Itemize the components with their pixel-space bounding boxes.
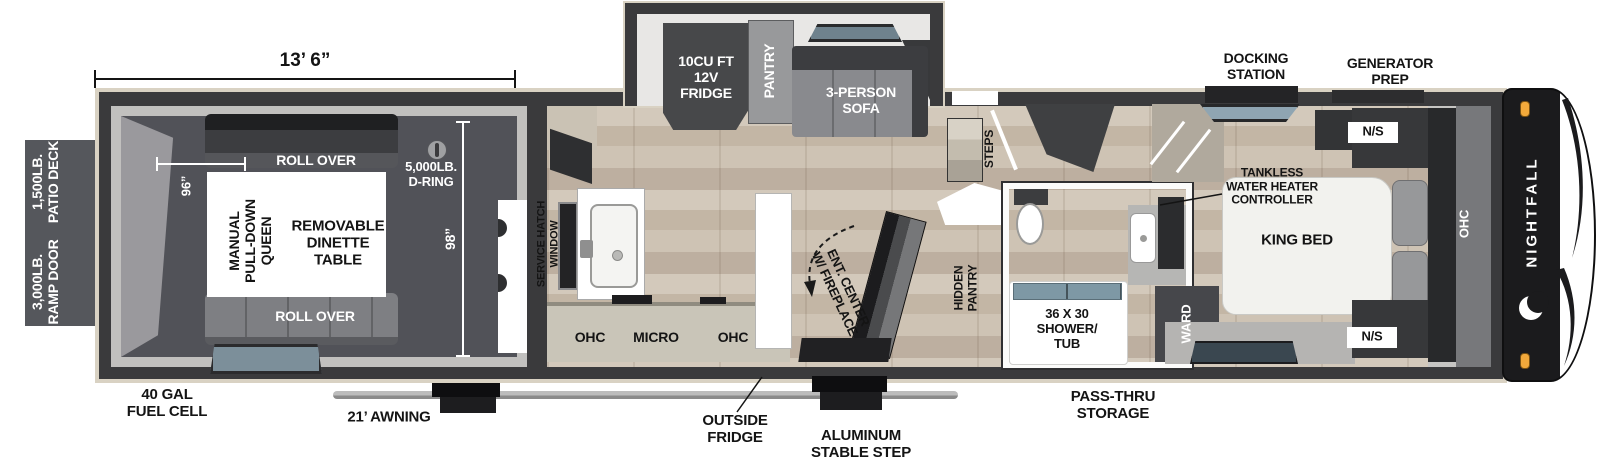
step-edge bbox=[1150, 121, 1186, 165]
marker-light-icon bbox=[1520, 101, 1530, 117]
front-cap bbox=[1502, 88, 1596, 382]
shower-tub-label: 36 X 30 SHOWER/ TUB bbox=[1037, 307, 1098, 351]
marker-light-icon bbox=[1520, 353, 1530, 369]
service-hatch-window-glass bbox=[558, 202, 578, 290]
entry-step-exterior bbox=[440, 397, 496, 413]
stable-step-exterior bbox=[812, 376, 887, 392]
tankless-controller-label: TANKLESS WATER HEATER CONTROLLER bbox=[1226, 166, 1318, 207]
outside-fridge-label: OUTSIDE FRIDGE bbox=[702, 412, 767, 446]
nightstand-bottom-label: N/S bbox=[1361, 330, 1382, 345]
bedroom-corner-cabinet bbox=[1315, 110, 1352, 150]
shower-glass bbox=[1013, 283, 1122, 300]
passthru-window bbox=[1190, 341, 1298, 364]
fuel-cell-label: 40 GAL FUEL CELL bbox=[127, 386, 207, 420]
step-edge bbox=[1176, 129, 1212, 173]
garage-depth-dimension: 98” bbox=[443, 228, 459, 250]
queen-bed-label: MANUAL PULL-DOWN QUEEN bbox=[227, 199, 275, 283]
nightstand-top-label: N/S bbox=[1362, 125, 1383, 140]
kitchen-sink bbox=[590, 204, 638, 288]
speaker-cutout-icon bbox=[498, 274, 507, 292]
ohc-right-label: OHC bbox=[718, 330, 749, 346]
stable-step-label: ALUMINUM STABLE STEP bbox=[811, 427, 911, 458]
dimension-line-overall bbox=[95, 70, 515, 88]
entry-step-exterior bbox=[432, 383, 500, 397]
micro-label: MICRO bbox=[633, 330, 679, 346]
top-wall-door-gap bbox=[952, 91, 998, 105]
stable-step-exterior bbox=[820, 392, 882, 410]
bedroom-ohc-label: OHC bbox=[1458, 210, 1473, 238]
service-hatch-window-label: SERVICE HATCH WINDOW bbox=[535, 201, 560, 287]
bath-mirror bbox=[1158, 197, 1184, 269]
ohc-left-label: OHC bbox=[575, 330, 606, 346]
wardrobe-label: WARD bbox=[1180, 305, 1195, 344]
docking-station-label: DOCKING STATION bbox=[1224, 51, 1289, 83]
brand-logo-text: NIGHTFALL bbox=[1523, 156, 1540, 267]
sofa-label: 3-PERSON SOFA bbox=[826, 85, 896, 117]
roll-over-bottom-label: ROLL OVER bbox=[275, 309, 355, 325]
patio-deck-label: 1,500LB. PATIO DECK bbox=[30, 141, 62, 223]
headboard-band bbox=[1428, 108, 1456, 362]
generator-prep-zone bbox=[1332, 90, 1424, 103]
generator-prep-label: GENERATOR PREP bbox=[1347, 56, 1433, 88]
overall-width-dimension: 13’ 6” bbox=[280, 50, 331, 72]
ramp-door-label: 3,000LB. RAMP DOOR bbox=[30, 239, 62, 324]
bedroom-skylight bbox=[1200, 104, 1300, 122]
pantry-label: PANTRY bbox=[762, 44, 778, 99]
steps-label: STEPS bbox=[983, 130, 997, 168]
sink-drain-icon bbox=[612, 250, 623, 261]
pass-thru-storage-label: PASS-THRU STORAGE bbox=[1071, 388, 1156, 422]
kitchen-island bbox=[755, 193, 792, 349]
hidden-pantry-label: HIDDEN PANTRY bbox=[952, 265, 979, 312]
dinette-label: REMOVABLE DINETTE TABLE bbox=[292, 217, 385, 268]
faucet-icon bbox=[580, 240, 593, 258]
d-ring-label: 5,000LB. D-RING bbox=[405, 160, 457, 190]
garage-cabinet bbox=[498, 200, 527, 353]
tv-base bbox=[798, 338, 891, 362]
bed-pillow bbox=[1392, 180, 1428, 246]
awning-label: 21’ AWNING bbox=[347, 408, 430, 425]
garage-width-dimension: 96” bbox=[180, 176, 195, 196]
entry-steps bbox=[947, 118, 983, 182]
floorplan-diagram: 13’ 6” 1,500LB. PATIO DECK 3,000LB. RAMP… bbox=[0, 0, 1600, 458]
roll-over-top-label: ROLL OVER bbox=[276, 153, 356, 169]
sink-drain-icon bbox=[1140, 235, 1147, 242]
counter-item-icon bbox=[700, 297, 726, 304]
bath-sink bbox=[1130, 213, 1156, 263]
king-bed-label: KING BED bbox=[1261, 231, 1333, 248]
d-ring-pin bbox=[435, 143, 439, 157]
sofa-window bbox=[808, 24, 902, 42]
d-ring-icon bbox=[427, 140, 447, 160]
garage-window bbox=[210, 344, 322, 374]
docking-station-bar bbox=[1205, 86, 1298, 103]
fridge-label: 10CU FT 12V FRIDGE bbox=[678, 54, 733, 102]
speaker-cutout-icon bbox=[498, 219, 507, 237]
cooktop-icon bbox=[612, 295, 652, 304]
toilet-bowl bbox=[1016, 203, 1044, 245]
